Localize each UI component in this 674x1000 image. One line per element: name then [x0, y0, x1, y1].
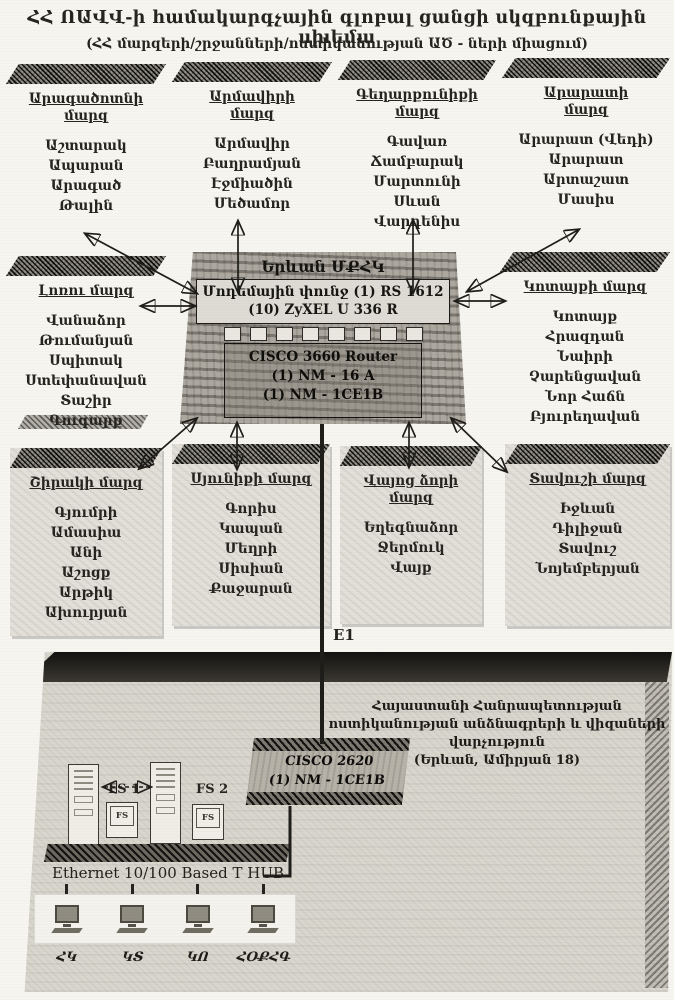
city-list: ԳորիսԿապանՄեղրիՍիսիանՔաջարան [172, 499, 330, 599]
workstation-label: ԿՏ [98, 950, 166, 965]
region-box-aragatsotn: Արագածոտնի մարզ ԱշտարակԱպարանԱրագածԹալին [6, 64, 166, 216]
yerevan-hub-block: Երևան ՄՔՀԿ Մոդեմային փունջ (1) RS 1612 (… [180, 252, 466, 424]
city-list: ԵղեգնաձորՋերմուկՎայք [340, 518, 482, 578]
router-slab-bottom [246, 792, 404, 805]
router-line: CISCO 2620 [250, 752, 408, 771]
tower-vents-icon [74, 770, 93, 790]
city-item: Սպիտակ [6, 351, 166, 371]
region-slab-icon [6, 256, 166, 276]
modem-port-icon [276, 327, 293, 341]
region-slab-icon [505, 444, 670, 464]
modem-port-icon [406, 327, 423, 341]
city-item: Գյումրի [10, 503, 162, 523]
city-item: Գուգարք [6, 411, 166, 431]
city-item: Արմավիր [172, 134, 332, 154]
city-item: Աշտարակ [6, 136, 166, 156]
region-title: Արագածոտնի մարզ [6, 91, 166, 125]
region-title: Շիրակի մարզ [10, 475, 162, 492]
fs-monitor-icon: FS [106, 802, 138, 838]
ethernet-hub-label: Ethernet 10/100 Based T HUB [42, 864, 294, 882]
city-list: ՎանաձորԹումանյանՍպիտակՍտեփանավանՏաշիրԳու… [6, 311, 166, 431]
router-line: (1) NM - 1CE1B [248, 771, 406, 790]
city-item: Իջևան [505, 499, 670, 519]
region-title-line: Արմավիրի [172, 89, 332, 106]
tower-slot-icon [74, 809, 93, 816]
region-title-line: Վայոց ձորի [340, 473, 482, 490]
router-slab-top [252, 738, 410, 751]
city-item: Նոյեմբերյան [505, 559, 670, 579]
city-item: Դիլիջան [505, 519, 670, 539]
city-item: Մեծամոր [172, 194, 332, 214]
modem-port-icon [354, 327, 371, 341]
city-item: Ջերմուկ [340, 538, 482, 558]
region-slab-icon [10, 448, 162, 468]
workstation-pc-icon [246, 905, 280, 933]
modem-port-icon [380, 327, 397, 341]
region-title: Կոտայքի մարզ [500, 279, 670, 296]
city-item: Ամասիա [10, 523, 162, 543]
fs2-label: FS 2 [196, 782, 228, 797]
region-title-line: Սյունիքի մարզ [172, 471, 330, 488]
modem-pool-line: (10) ZyXEL U 336 R [197, 301, 449, 319]
city-item: Նոր Հաճն [500, 387, 670, 407]
region-title: Արմավիրի մարզ [172, 89, 332, 123]
city-list: ԻջևանԴիլիջանՏավուշՆոյեմբերյան [505, 499, 670, 579]
region-slab-icon [6, 64, 166, 84]
region-slab-icon [338, 60, 496, 80]
city-item: Ճամբարակ [338, 152, 496, 172]
modem-pool-line: Մոդեմային փունջ (1) RS 1612 [197, 283, 449, 301]
region-title: Գեղարքունիքի մարզ [338, 87, 496, 121]
city-item: Էջմիածին [172, 174, 332, 194]
region-box-kotayk: Կոտայքի մարզ ԿոտայքՀրազդանՆաիրիՉարենցավա… [500, 252, 670, 427]
fs-monitor-icon: FS [192, 804, 224, 840]
city-item: Աշոցք [10, 563, 162, 583]
city-item: Նաիրի [500, 347, 670, 367]
region-slab-icon [500, 252, 670, 272]
city-item: Մեղրի [172, 539, 330, 559]
modem-pool-box: Մոդեմային փունջ (1) RS 1612 (10) ZyXEL U… [196, 279, 450, 324]
workstation-strip [34, 894, 296, 944]
scanned-network-diagram: ՀՀ ՈԱՎՎ-ի համակարգչային գլոբալ ցանցի սկզ… [0, 0, 674, 1000]
fs1-label: FS 1 [108, 782, 140, 797]
city-item: Արտաշատ [502, 170, 670, 190]
e1-link-label: E1 [333, 626, 355, 644]
city-item: Չարենցավան [500, 367, 670, 387]
tower-slot-icon [156, 794, 175, 801]
city-item: Բաղրամյան [172, 154, 332, 174]
region-box-syunik: Սյունիքի մարզ ԳորիսԿապանՄեղրիՍիսիանՔաջար… [172, 444, 330, 626]
region-title-line: Արարատի [502, 85, 670, 102]
diagram-subtitle: (ՀՀ մարզերի/շրջանների/ոստիկանության ԱԾ -… [0, 36, 674, 52]
city-list: ԿոտայքՀրազդանՆաիրիՉարենցավանՆոր ՀաճնԲյու… [500, 307, 670, 427]
region-title-line: Կոտայքի մարզ [500, 279, 670, 296]
workstation-pc-icon [115, 905, 149, 933]
city-item: Գորիս [172, 499, 330, 519]
cisco-3660-box: CISCO 3660 Router (1) NM - 16 A (1) NM -… [224, 343, 422, 418]
city-list: ԳյումրիԱմասիաԱնիԱշոցքԱրթիկԱխուրյան [10, 503, 162, 623]
region-title: Լոռու մարզ [6, 283, 166, 300]
city-item: Վարդենիս [338, 212, 496, 232]
department-caption-line: Հայաստանի Հանրապետության [327, 698, 667, 716]
modem-port-icon [250, 327, 267, 341]
region-title-line: մարզ [172, 106, 332, 123]
city-item: Սևան [338, 192, 496, 212]
city-list: ԳավառՃամբարակՄարտունիՍևանՎարդենիս [338, 132, 496, 232]
city-item: Ապարան [6, 156, 166, 176]
modem-port-icon [302, 327, 319, 341]
cisco-2620-box: CISCO 2620 (1) NM - 1CE1B [246, 738, 410, 804]
workstation-pc-icon [181, 905, 215, 933]
modem-port-icon [328, 327, 345, 341]
region-box-tavush: Տավուշի մարզ ԻջևանԴիլիջանՏավուշՆոյեմբերյ… [505, 444, 670, 626]
city-list: ԱրմավիրԲաղրամյանԷջմիածինՄեծամոր [172, 134, 332, 214]
region-title-line: մարզ [338, 104, 496, 121]
city-item: Եղեգնաձոր [340, 518, 482, 538]
region-slab-icon [172, 62, 332, 82]
router-line: CISCO 3660 Router [225, 348, 421, 367]
city-item: Սիսիան [172, 559, 330, 579]
region-box-gegharkunik: Գեղարքունիքի մարզ ԳավառՃամբարակՄարտունիՍ… [338, 60, 496, 232]
region-title-line: Լոռու մարզ [6, 283, 166, 300]
region-title: Վայոց ձորի մարզ [340, 473, 482, 507]
department-caption-line: ոստիկանության անձնագրերի և վիզաների [327, 716, 667, 734]
region-title-line: Արագածոտնի [6, 91, 166, 108]
city-list: ԱշտարակԱպարանԱրագածԹալին [6, 136, 166, 216]
modem-port-icon [224, 327, 241, 341]
router-label: CISCO 2620 (1) NM - 1CE1B [247, 751, 408, 792]
region-title: Արարատի մարզ [502, 85, 670, 119]
region-title-line: Գեղարքունիքի [338, 87, 496, 104]
city-item: Տաշիր [6, 391, 166, 411]
router-line: (1) NM - 1CE1B [225, 386, 421, 405]
city-item: Բյուրեղավան [500, 407, 670, 427]
region-slab-icon [340, 446, 482, 466]
region-title-line: Շիրակի մարզ [10, 475, 162, 492]
city-item: Թալին [6, 196, 166, 216]
tower-slot-icon [156, 807, 175, 814]
city-item: Վայք [340, 558, 482, 578]
tower-slot-icon [74, 796, 93, 803]
fs-monitor-screen: FS [110, 806, 134, 826]
city-item: Գավառ [338, 132, 496, 152]
city-item: Քաջարան [172, 579, 330, 599]
city-item: Արթիկ [10, 583, 162, 603]
hub-title: Երևան ՄՔՀԿ [180, 252, 466, 276]
router-line: (1) NM - 16 A [225, 367, 421, 386]
city-item: Արարատ (Վեդի) [502, 130, 670, 150]
city-item: Անի [10, 543, 162, 563]
region-title-line: Տավուշի մարզ [505, 471, 670, 488]
file-server-tower-icon [150, 762, 181, 844]
pvd-building-block: Հայաստանի Հանրապետության ոստիկանության ա… [22, 652, 672, 992]
workstation-label: ՀԿ [33, 950, 101, 965]
city-item: Մասիս [502, 190, 670, 210]
city-list: Արարատ (Վեդի)ԱրարատԱրտաշատՄասիս [502, 130, 670, 210]
city-item: Մարտունի [338, 172, 496, 192]
city-item: Կոտայք [500, 307, 670, 327]
city-item: Արագած [6, 176, 166, 196]
file-server-tower-icon [68, 764, 99, 846]
region-title-line: մարզ [502, 102, 670, 119]
region-box-shirak: Շիրակի մարզ ԳյումրիԱմասիաԱնիԱշոցքԱրթիկԱխ… [10, 448, 162, 636]
region-slab-icon [172, 444, 330, 464]
modem-port-row [180, 327, 466, 341]
city-item: Հրազդան [500, 327, 670, 347]
region-title: Սյունիքի մարզ [172, 471, 330, 488]
city-item: Ախուրյան [10, 603, 162, 623]
region-title-line: մարզ [6, 108, 166, 125]
city-item: Տավուշ [505, 539, 670, 559]
region-title: Տավուշի մարզ [505, 471, 670, 488]
city-item: Կապան [172, 519, 330, 539]
region-box-armavir: Արմավիրի մարզ ԱրմավիրԲաղրամյանԷջմիածինՄե… [172, 62, 332, 214]
region-title-line: մարզ [340, 490, 482, 507]
building-roof-band [22, 652, 672, 682]
region-box-lori: Լոռու մարզ ՎանաձորԹումանյանՍպիտակՍտեփանա… [6, 256, 166, 431]
workstation-label: ՀՕՔՀԳ [229, 950, 297, 965]
workstation-drop-lines [34, 884, 296, 894]
workstation-labels: ՀԿ ԿՏ ԿՈ ՀՕՔՀԳ [34, 950, 296, 965]
region-box-vayots-dzor: Վայոց ձորի մարզ ԵղեգնաձորՋերմուկՎայք [340, 446, 482, 624]
city-item: Վանաձոր [6, 311, 166, 331]
city-item: Ստեփանավան [6, 371, 166, 391]
tower-vents-icon [156, 768, 175, 788]
workstation-label: ԿՈ [164, 950, 232, 965]
city-item: Արարատ [502, 150, 670, 170]
workstation-pc-icon [50, 905, 84, 933]
fs-monitor-screen: FS [196, 808, 220, 828]
region-slab-icon [502, 58, 670, 78]
region-box-ararat: Արարատի մարզ Արարատ (Վեդի)ԱրարատԱրտաշատՄ… [502, 58, 670, 210]
ethernet-hub-bar [44, 844, 290, 862]
city-item: Թումանյան [6, 331, 166, 351]
